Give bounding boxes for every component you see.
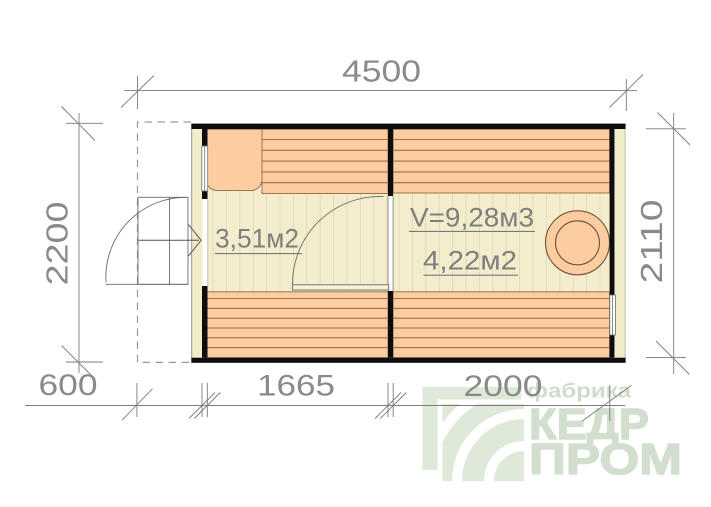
svg-text:2110: 2110 xyxy=(634,200,669,284)
svg-text:ПРОМ: ПРОМ xyxy=(529,435,682,484)
svg-text:4500: 4500 xyxy=(342,54,421,89)
svg-text:3,51м2: 3,51м2 xyxy=(215,224,299,254)
svg-text:1665: 1665 xyxy=(257,370,335,403)
svg-text:2000: 2000 xyxy=(464,370,543,403)
svg-text:4,22м2: 4,22м2 xyxy=(423,246,517,276)
svg-text:600: 600 xyxy=(39,369,98,402)
svg-text:V=9,28м3: V=9,28м3 xyxy=(410,203,534,233)
svg-text:2200: 2200 xyxy=(40,202,75,286)
